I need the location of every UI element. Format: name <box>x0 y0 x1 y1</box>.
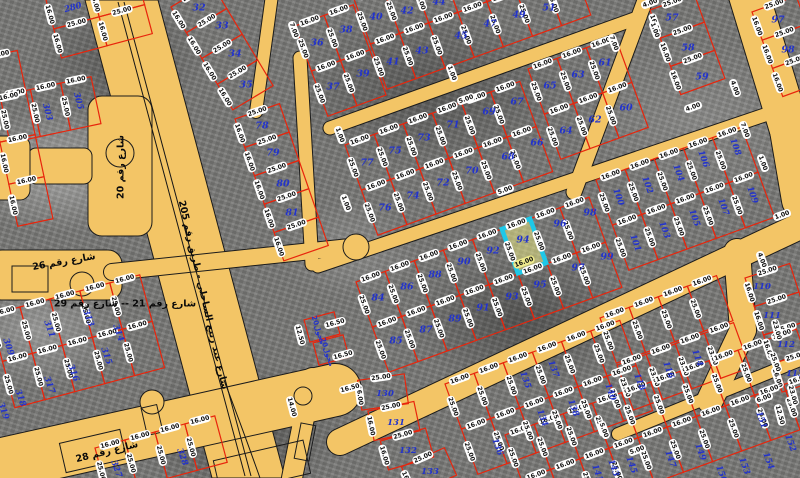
dimension-label: 25.00 <box>59 95 72 118</box>
dimension-label: 25.00 <box>19 318 33 341</box>
culdesac-bulb <box>294 387 312 405</box>
svg-text:25.00: 25.00 <box>714 150 728 171</box>
svg-text:16.00: 16.00 <box>316 59 337 73</box>
svg-text:25.00: 25.00 <box>122 342 134 363</box>
dimension-label: 16.00 <box>348 132 371 147</box>
svg-text:16.00: 16.00 <box>704 181 725 195</box>
svg-text:16.00: 16.00 <box>582 375 603 389</box>
dimension-label: 16.00 <box>732 170 755 185</box>
parcel-number-35: 35 <box>239 80 253 91</box>
dimension-label: 16.50 <box>323 316 346 330</box>
dimension-label: 16.00 <box>678 331 701 346</box>
dimension-label: 1.00 <box>756 153 770 173</box>
dimension-label: 16.00 <box>399 469 415 478</box>
dimension-label: 16.00 <box>298 13 321 28</box>
svg-text:25.00: 25.00 <box>371 373 392 383</box>
parcel-number-106: 106 <box>695 149 710 169</box>
dimension-label: 16.00 <box>553 457 576 472</box>
parcel-number-33: 33 <box>215 21 229 32</box>
svg-text:25.00: 25.00 <box>450 171 464 192</box>
parcel-number-93: 93 <box>505 292 519 303</box>
dimension-label: 16.00 <box>452 145 475 160</box>
svg-text:16.00: 16.00 <box>526 468 547 478</box>
svg-text:16.00: 16.00 <box>437 101 458 115</box>
svg-text:25.00: 25.00 <box>639 450 653 471</box>
dimension-label: 25.00 <box>460 306 475 329</box>
svg-text:25.00: 25.00 <box>463 115 477 136</box>
parcel-number-134: 134 <box>534 408 549 428</box>
svg-text:25.00: 25.00 <box>689 298 703 319</box>
parcel-number-75: 75 <box>388 146 402 157</box>
dimension-label: 25.00 <box>431 317 446 340</box>
dimension-label: 25.00 <box>660 0 683 10</box>
svg-text:16.50: 16.50 <box>333 349 354 361</box>
svg-text:1.00: 1.00 <box>757 155 769 172</box>
dimension-label: 25.00 <box>386 282 401 305</box>
dimension-label: 16.00 <box>170 8 188 31</box>
svg-text:25.00: 25.00 <box>375 147 389 168</box>
svg-text:16.00: 16.00 <box>477 228 498 242</box>
parcel-number-62: 62 <box>588 115 602 126</box>
svg-text:16.00: 16.00 <box>253 180 266 201</box>
svg-text:25.00: 25.00 <box>228 64 249 80</box>
svg-text:25.00: 25.00 <box>548 276 562 297</box>
dimension-label: 16.00 <box>493 406 516 421</box>
dimension-label: 25.00 <box>346 156 361 179</box>
dimension-label: 25.00 <box>449 169 464 192</box>
dimension-label: 25.00 <box>65 16 88 30</box>
dimension-label: 25.00 <box>713 148 728 171</box>
svg-text:25.00: 25.00 <box>474 252 488 273</box>
svg-text:25.00: 25.00 <box>20 320 32 341</box>
parcel-number-90: 90 <box>457 257 471 268</box>
svg-text:25.00: 25.00 <box>597 192 611 213</box>
svg-text:16.00: 16.00 <box>424 157 445 171</box>
parcel-number-109: 109 <box>744 185 759 205</box>
parcel-number-51: 51 <box>542 3 555 14</box>
parcel-number-41: 41 <box>386 57 399 68</box>
svg-text:25.00: 25.00 <box>415 273 429 294</box>
svg-text:25.00: 25.00 <box>461 308 475 329</box>
dimension-label: 16.00 <box>524 467 547 478</box>
parcel-number-70: 70 <box>465 166 479 177</box>
parcel-number-63: 63 <box>571 70 585 81</box>
svg-text:25.00: 25.00 <box>672 216 686 237</box>
parcel-number-137: 137 <box>545 359 560 379</box>
dimension-label: 16.00 <box>51 32 65 55</box>
svg-text:25.00: 25.00 <box>374 339 388 360</box>
dimension-label: 25.00 <box>373 338 388 361</box>
dimension-label: 25.00 <box>384 0 399 23</box>
parcel-number-44: 44 <box>432 0 445 8</box>
dimension-label: 16.00 <box>417 248 440 263</box>
parcel-number-61: 61 <box>598 58 611 69</box>
dimension-label: 25.00 <box>700 204 715 227</box>
svg-text:25.00: 25.00 <box>672 24 693 38</box>
culdesac-bulb <box>343 234 369 260</box>
dimension-label: 25.00 <box>325 26 340 49</box>
svg-text:16.00: 16.00 <box>389 260 410 274</box>
dimension-label: 16.00 <box>185 34 203 57</box>
svg-text:25.00: 25.00 <box>0 328 2 349</box>
svg-text:25.00: 25.00 <box>355 11 369 32</box>
dimension-label: 16.00 <box>375 314 398 329</box>
svg-text:16.00: 16.00 <box>553 385 574 399</box>
dimension-label: 25.00 <box>357 293 372 316</box>
parcel-number-145: 145 <box>623 455 638 475</box>
dimension-label: 16.00 <box>435 100 458 115</box>
svg-text:25.00: 25.00 <box>730 195 744 216</box>
dimension-label: 4.00 <box>728 78 742 98</box>
dimension-label: 16.00 <box>492 272 515 287</box>
svg-text:16.00: 16.00 <box>730 394 751 408</box>
svg-text:25.00: 25.00 <box>445 262 459 283</box>
svg-text:25.00: 25.00 <box>66 17 87 29</box>
svg-text:16.00: 16.00 <box>201 61 217 82</box>
svg-text:16.00: 16.00 <box>35 81 56 92</box>
svg-text:25.00: 25.00 <box>266 162 287 175</box>
dimension-label: 16.00 <box>377 444 391 467</box>
dimension-label: 16.00 <box>216 85 234 108</box>
dimension-label: 25.00 <box>535 435 550 458</box>
svg-text:25.00: 25.00 <box>434 125 448 146</box>
dimension-label: 16.00 <box>232 121 247 144</box>
dimension-label: 16.00 <box>461 0 484 15</box>
parcel-number-98: 98 <box>781 45 795 56</box>
parcel-number-135: 135 <box>517 370 532 390</box>
road-street <box>256 0 272 112</box>
svg-text:16.00: 16.00 <box>217 87 233 108</box>
parcel-number-45: 45 <box>454 31 468 42</box>
parcel-number-102: 102 <box>639 175 654 195</box>
dimension-label: 25.00 <box>655 170 670 193</box>
svg-text:16.00: 16.00 <box>453 146 474 160</box>
dimension-label: 25.00 <box>622 403 637 426</box>
parcel-number-92: 92 <box>486 246 500 257</box>
dimension-label: 25.00 <box>255 132 278 147</box>
svg-text:16.00: 16.00 <box>669 70 683 91</box>
svg-text:16.00: 16.00 <box>328 4 349 18</box>
parcel-number-91: 91 <box>476 303 489 314</box>
svg-text:16.00: 16.00 <box>404 22 425 36</box>
dimension-label: 25.00 <box>362 201 377 224</box>
svg-text:16.00: 16.00 <box>406 305 427 319</box>
dimension-label: 16.00 <box>668 69 683 92</box>
dimension-label: 25.00 <box>479 159 494 182</box>
parcel-number-104: 104 <box>670 163 685 183</box>
svg-text:16.00: 16.00 <box>233 123 246 144</box>
svg-text:16.00: 16.00 <box>170 10 186 31</box>
parcel-number-132: 132 <box>399 446 417 456</box>
dimension-label: 25.00 <box>548 274 563 297</box>
svg-text:16.00: 16.00 <box>419 249 440 263</box>
parcel-number-73: 73 <box>417 133 431 144</box>
parcel-number-76: 76 <box>378 203 392 214</box>
dimension-label: 25.00 <box>659 308 674 331</box>
svg-text:16.00: 16.00 <box>375 32 396 46</box>
parcel-number-88: 88 <box>428 270 442 281</box>
map-canvas[interactable]: 25.0016.0025.0016.0025.0016.0025.0016.00… <box>0 0 800 478</box>
parcel-number-79: 79 <box>266 148 280 159</box>
parcel-number-39: 39 <box>356 69 370 80</box>
parcel-number-32: 32 <box>192 3 206 14</box>
parcel-number-74: 74 <box>406 191 419 202</box>
svg-text:16.00: 16.00 <box>584 447 605 461</box>
parcel-number-113: 113 <box>786 369 800 379</box>
dimension-label: 12.50 <box>293 323 307 346</box>
svg-text:25.00: 25.00 <box>363 202 377 223</box>
svg-text:25.00: 25.00 <box>384 1 398 22</box>
dimension-label: 25.00 <box>275 189 298 204</box>
dimension-label: 25.00 <box>626 180 641 203</box>
svg-text:16.00: 16.00 <box>658 42 672 63</box>
dimension-label: 16.00 <box>0 304 17 318</box>
parcel-number-محول20: محول20 <box>319 337 336 368</box>
parcel-number-65: 65 <box>543 81 557 92</box>
svg-text:25.00: 25.00 <box>546 126 560 147</box>
parcel-number-152: 152 <box>782 433 797 453</box>
dimension-label: 16.00 <box>406 111 429 126</box>
svg-text:16.00: 16.00 <box>37 344 58 356</box>
dimension-label: 25.00 <box>400 44 415 67</box>
dimension-label: 25.00 <box>462 440 477 463</box>
svg-text:25.00: 25.00 <box>346 157 360 178</box>
road-street <box>300 58 312 264</box>
svg-text:16.00: 16.00 <box>675 192 696 206</box>
dimension-label: 16.50 <box>331 348 354 362</box>
parcel-number-98: 98 <box>583 208 597 219</box>
street-name-label: شارع رقم 21 -- شارع رقم 29 <box>54 299 196 310</box>
dimension-label: 25.00 <box>341 71 356 94</box>
svg-text:25.00: 25.00 <box>623 405 637 426</box>
dimension-label: 16.00 <box>423 156 446 171</box>
dimension-label: 25.00 <box>420 180 435 203</box>
svg-text:16.00: 16.00 <box>650 343 671 357</box>
dimension-label: 25.00 <box>369 372 392 383</box>
dimension-label: 25.00 <box>529 80 544 103</box>
dimension-label: 25.00 <box>226 63 249 81</box>
dimension-label: 25.00 <box>504 374 519 397</box>
parcel-number-64: 64 <box>559 126 572 137</box>
parcel-number-112: 112 <box>777 340 795 350</box>
parcel-number-72: 72 <box>436 178 450 189</box>
dimension-label: 16.00 <box>579 240 602 255</box>
svg-text:25.00: 25.00 <box>659 309 673 330</box>
svg-text:16.00: 16.00 <box>360 270 381 284</box>
parcel-number-280: 280 <box>62 1 83 16</box>
svg-text:16.00: 16.00 <box>377 315 398 329</box>
svg-text:25.00: 25.00 <box>575 116 589 137</box>
dimension-label: 25.00 <box>0 108 11 131</box>
dimension-label: 25.00 <box>519 285 534 308</box>
svg-text:25.00: 25.00 <box>504 375 518 396</box>
svg-text:4.00: 4.00 <box>729 80 741 97</box>
parcel-number-95: 95 <box>533 280 547 291</box>
dimension-label: 16.00 <box>327 2 350 17</box>
svg-text:16.00: 16.00 <box>435 294 456 308</box>
parcel-number-43: 43 <box>415 46 429 57</box>
dimension-label: 25.00 <box>122 341 136 364</box>
svg-text:25.00: 25.00 <box>404 136 418 157</box>
svg-text:25.00: 25.00 <box>662 0 683 9</box>
dimension-label: 16.00 <box>0 90 20 103</box>
svg-text:16.00: 16.00 <box>621 353 642 367</box>
svg-text:16.00: 16.00 <box>345 49 366 63</box>
parcel-number-319: 319 <box>0 401 11 421</box>
svg-text:16.00: 16.00 <box>581 241 602 255</box>
svg-text:25.00: 25.00 <box>529 81 543 102</box>
dimension-label: 16.00 <box>703 180 726 195</box>
svg-text:16.00: 16.00 <box>66 75 87 86</box>
svg-text:16.00: 16.00 <box>549 102 570 116</box>
svg-text:4.00: 4.00 <box>685 101 702 113</box>
svg-text:16.00: 16.00 <box>646 203 667 217</box>
dimension-label: 1.00 <box>339 193 353 213</box>
parcel-number-143: 143 <box>605 458 620 478</box>
parcel-number-150: 150 <box>713 464 728 478</box>
parcel-number-130: 130 <box>376 389 394 399</box>
parcel-number-86: 86 <box>400 282 414 293</box>
svg-text:16.00: 16.00 <box>495 80 516 94</box>
parcel-number-313: 313 <box>80 308 95 328</box>
svg-text:16.00: 16.00 <box>395 168 416 182</box>
svg-text:25.00: 25.00 <box>276 190 297 203</box>
dimension-label: 25.00 <box>312 82 327 105</box>
dimension-label: 25.00 <box>630 318 645 341</box>
svg-text:16.00: 16.00 <box>617 213 638 227</box>
dimension-label: 25.00 <box>642 225 657 248</box>
svg-text:25.00: 25.00 <box>386 284 400 305</box>
dimension-label: 25.00 <box>506 446 521 469</box>
svg-text:16.00: 16.00 <box>243 151 256 172</box>
dimension-label: 16.00 <box>432 10 455 25</box>
dimension-label: 25.00 <box>765 292 788 307</box>
dimension-label: 16.00 <box>674 191 697 206</box>
dimension-label: 16.00 <box>125 318 148 332</box>
dimension-label: 25.00 <box>490 296 505 319</box>
dimension-label: 12.50 <box>773 403 787 426</box>
svg-text:25.00: 25.00 <box>403 329 417 350</box>
svg-text:25.00: 25.00 <box>479 160 493 181</box>
svg-text:16.00: 16.00 <box>51 33 63 54</box>
svg-text:25.00: 25.00 <box>313 83 327 104</box>
cadastral-map: 25.0016.0025.0016.0025.0016.0025.0016.00… <box>0 0 800 478</box>
street-name-label: شارع رقم 20 <box>116 135 127 199</box>
dimension-label: 25.00 <box>545 125 560 148</box>
svg-text:25.00: 25.00 <box>392 192 406 213</box>
dimension-label: 16.00 <box>388 258 411 273</box>
svg-text:25.00: 25.00 <box>401 46 415 67</box>
svg-text:25.00: 25.00 <box>0 109 10 130</box>
parcel-number-58: 58 <box>681 43 695 54</box>
parcel-number-99: 99 <box>600 252 614 263</box>
svg-text:25.00: 25.00 <box>2 374 14 395</box>
parcel-number-36: 36 <box>310 38 324 49</box>
svg-text:25.00: 25.00 <box>325 28 339 49</box>
svg-text:16.00: 16.00 <box>0 305 16 317</box>
svg-text:25.00: 25.00 <box>685 160 699 181</box>
dimension-label: 25.00 <box>726 417 741 440</box>
parcel-number-151: 151 <box>753 410 768 430</box>
parcel-number-68: 68 <box>501 152 515 163</box>
svg-text:16.00: 16.00 <box>433 11 454 25</box>
dimension-label: 16.00 <box>644 202 667 217</box>
svg-text:25.00: 25.00 <box>655 171 669 192</box>
dimension-label: 25.00 <box>402 327 417 350</box>
dimension-label: 25.00 <box>533 363 548 386</box>
svg-text:25.00: 25.00 <box>563 354 577 375</box>
svg-text:16.00: 16.00 <box>299 14 320 28</box>
dimension-label: 25.00 <box>613 236 628 259</box>
svg-text:25.00: 25.00 <box>357 294 371 315</box>
parcel-number-305: 305 <box>71 91 85 111</box>
parcel-number-80: 80 <box>276 179 290 190</box>
dimension-label: 25.00 <box>671 215 686 238</box>
dimension-label: 16.00 <box>393 167 416 182</box>
svg-text:16.50: 16.50 <box>325 317 346 329</box>
svg-text:16.00: 16.00 <box>555 458 576 472</box>
parcel-number-111: 111 <box>763 311 781 321</box>
parcel-number-87: 87 <box>419 325 433 336</box>
dimension-label: 25.00 <box>371 55 386 78</box>
dimension-label: 25.00 <box>591 342 606 365</box>
svg-text:16.00: 16.00 <box>482 136 503 150</box>
parcel-number-81: 81 <box>285 208 298 219</box>
dimension-label: 16.00 <box>314 58 337 73</box>
dimension-label: 16.00 <box>200 60 218 83</box>
svg-text:16.00: 16.00 <box>680 332 701 346</box>
svg-text:16.00: 16.00 <box>358 0 379 1</box>
dimension-label: 25.00 <box>32 365 46 388</box>
svg-text:25.00: 25.00 <box>257 133 278 146</box>
svg-text:25.00: 25.00 <box>626 182 640 203</box>
dimension-label: 25.00 <box>57 0 80 1</box>
svg-text:1.00: 1.00 <box>340 195 352 212</box>
dimension-label: 25.00 <box>730 194 745 217</box>
dimension-label: 16.00 <box>242 150 257 173</box>
svg-text:16.00: 16.00 <box>67 336 88 348</box>
parcel-number-66: 66 <box>530 138 544 149</box>
dimension-label: 16.00 <box>66 334 89 348</box>
dimension-label: 25.00 <box>601 329 616 352</box>
dimension-label: 16.00 <box>649 341 672 356</box>
svg-text:16.00: 16.00 <box>611 364 632 378</box>
svg-text:25.00: 25.00 <box>682 52 703 66</box>
dimension-label: 5.00 <box>456 92 476 106</box>
svg-text:25.00: 25.00 <box>766 293 787 306</box>
parcel-number-34: 34 <box>228 49 241 60</box>
svg-text:16.00: 16.00 <box>408 112 429 126</box>
parcel-number-67: 67 <box>510 97 524 108</box>
parcel-number-85: 85 <box>389 336 403 347</box>
parcel-number-105: 105 <box>686 208 701 228</box>
parcel-number-78: 78 <box>255 121 269 132</box>
svg-text:25.00: 25.00 <box>506 447 520 468</box>
dimension-label: 16.00 <box>43 3 57 26</box>
dimension-label: 16.00 <box>547 101 570 116</box>
dimension-label: 16.00 <box>493 79 516 94</box>
svg-text:16.00: 16.00 <box>733 171 754 185</box>
svg-text:16.00: 16.00 <box>349 133 370 147</box>
parcel-number-40: 40 <box>369 12 383 23</box>
parcel-number-38: 38 <box>339 25 353 36</box>
svg-text:25.00: 25.00 <box>558 71 572 92</box>
dimension-label: 16.00 <box>262 207 277 230</box>
dimension-label: 25.00 <box>355 10 370 33</box>
svg-text:16.00: 16.00 <box>366 178 387 192</box>
svg-text:16.00: 16.00 <box>378 445 390 466</box>
parcel-number-108: 108 <box>727 137 742 157</box>
